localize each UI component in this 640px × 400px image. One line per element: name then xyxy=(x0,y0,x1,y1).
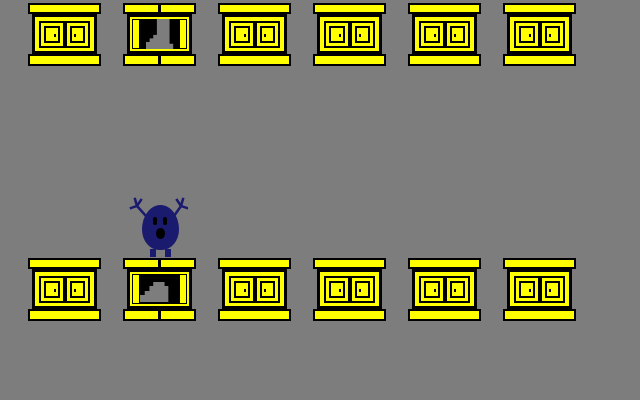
door-panel xyxy=(519,26,535,43)
door-handle-icon xyxy=(549,34,551,37)
cabinet-left-door[interactable] xyxy=(229,276,255,303)
door-panel xyxy=(355,26,371,43)
door-panel xyxy=(519,281,535,298)
door-panel xyxy=(424,26,440,43)
door-panel xyxy=(70,281,86,298)
cabinet-body xyxy=(507,269,572,309)
cabinet-bottom-shelf xyxy=(28,54,101,66)
cabinet-doors xyxy=(324,21,375,48)
cabinet-doors xyxy=(324,276,375,303)
cabinet-interior xyxy=(132,19,187,49)
cabinet-closed[interactable] xyxy=(503,3,576,66)
door-handle-icon xyxy=(74,34,76,37)
cabinet-left-door[interactable] xyxy=(324,21,350,48)
cabinet-closed[interactable] xyxy=(313,258,386,321)
door-panel xyxy=(329,281,345,298)
cabinet-doors xyxy=(229,276,280,303)
cabinet-bottom-shelf xyxy=(408,309,481,321)
cabinet-top-shelf xyxy=(408,258,481,269)
cabinet-closed[interactable] xyxy=(313,3,386,66)
cabinet-top-shelf xyxy=(313,258,386,269)
cabinet-doors xyxy=(514,276,565,303)
door-handle-icon xyxy=(359,289,361,292)
door-handle-icon xyxy=(74,289,76,292)
cabinet-body xyxy=(317,269,382,309)
cabinet-open[interactable] xyxy=(123,258,196,321)
cabinet-closed[interactable] xyxy=(28,3,101,66)
door-handle-icon xyxy=(54,289,56,292)
cabinet-bottom-shelf xyxy=(218,54,291,66)
cabinet-closed[interactable] xyxy=(503,258,576,321)
character-left-arm xyxy=(131,199,146,216)
cabinet-doors xyxy=(419,21,470,48)
door-handle-icon xyxy=(54,34,56,37)
door-handle-icon xyxy=(244,34,246,37)
cabinet-bottom-shelf xyxy=(313,309,386,321)
cabinet-right-door[interactable] xyxy=(65,276,91,303)
door-handle-icon xyxy=(434,289,436,292)
cabinet-doors xyxy=(39,276,90,303)
cabinet-top-shelf xyxy=(28,258,101,269)
cabinet-doors xyxy=(229,21,280,48)
cabinet-bottom-shelf xyxy=(503,54,576,66)
door-handle-icon xyxy=(359,34,361,37)
game-scene xyxy=(0,0,640,400)
cabinet-doors xyxy=(419,276,470,303)
character-mouth xyxy=(156,228,165,239)
cabinet-body xyxy=(222,14,287,54)
door-panel xyxy=(44,281,60,298)
door-panel xyxy=(545,281,561,298)
character-left-foot xyxy=(150,249,156,257)
cabinet-open[interactable] xyxy=(123,3,196,66)
cabinet-body xyxy=(507,14,572,54)
door-panel xyxy=(329,26,345,43)
cabinet-bottom-shelf xyxy=(408,54,481,66)
character-left-eye xyxy=(153,217,157,225)
door-handle-icon xyxy=(264,34,266,37)
door-handle-icon xyxy=(264,289,266,292)
cabinet-body xyxy=(317,14,382,54)
cabinet-doors xyxy=(514,21,565,48)
door-panel xyxy=(44,26,60,43)
cabinet-body xyxy=(32,269,97,309)
door-handle-icon xyxy=(339,289,341,292)
door-panel xyxy=(450,281,466,298)
cabinet-right-door[interactable] xyxy=(255,21,281,48)
cabinet-top-shelf xyxy=(408,3,481,14)
door-handle-icon xyxy=(454,289,456,292)
door-handle-icon xyxy=(244,289,246,292)
door-panel xyxy=(545,26,561,43)
cabinet-left-door[interactable] xyxy=(39,21,65,48)
open-door-edge-right xyxy=(180,20,186,48)
cabinet-right-door[interactable] xyxy=(350,21,376,48)
door-handle-icon xyxy=(529,289,531,292)
cabinet-doors xyxy=(39,21,90,48)
door-handle-icon xyxy=(339,34,341,37)
cabinet-bottom-shelf xyxy=(313,54,386,66)
character-right-foot xyxy=(165,249,171,257)
door-panel xyxy=(450,26,466,43)
cabinet-closed[interactable] xyxy=(218,3,291,66)
cabinet-left-door[interactable] xyxy=(324,276,350,303)
cabinet-bottom-shelf xyxy=(123,54,196,66)
cabinet-top-shelf xyxy=(123,258,196,269)
cabinet-body xyxy=(127,269,192,309)
cabinet-left-door[interactable] xyxy=(419,21,445,48)
door-panel xyxy=(260,281,276,298)
cabinet-top-shelf xyxy=(313,3,386,14)
door-handle-icon xyxy=(549,289,551,292)
cabinet-left-door[interactable] xyxy=(39,276,65,303)
door-panel xyxy=(355,281,371,298)
boot-icon xyxy=(146,19,175,49)
door-handle-icon xyxy=(434,34,436,37)
cabinet-right-door[interactable] xyxy=(445,21,471,48)
cabinet-body xyxy=(32,14,97,54)
door-panel xyxy=(70,26,86,43)
cabinet-top-shelf xyxy=(503,3,576,14)
cabinet-top-shelf xyxy=(123,3,196,14)
cabinet-body xyxy=(127,14,192,54)
cabinet-top-shelf xyxy=(218,3,291,14)
cabinet-closed[interactable] xyxy=(218,258,291,321)
cabinet-right-door[interactable] xyxy=(255,276,281,303)
door-panel xyxy=(234,281,250,298)
cabinet-left-door[interactable] xyxy=(419,276,445,303)
character-right-eye xyxy=(163,217,167,225)
open-door-edge-left xyxy=(133,275,139,303)
shoe-icon xyxy=(140,280,174,302)
door-handle-icon xyxy=(529,34,531,37)
player-character[interactable] xyxy=(128,196,188,258)
cabinet-bottom-shelf xyxy=(28,309,101,321)
open-door-edge-left xyxy=(133,20,139,48)
cabinet-right-door[interactable] xyxy=(350,276,376,303)
cabinet-left-door[interactable] xyxy=(514,276,540,303)
cabinet-left-door[interactable] xyxy=(514,21,540,48)
character-right-arm xyxy=(174,199,187,216)
cabinet-right-door[interactable] xyxy=(65,21,91,48)
cabinet-body xyxy=(412,14,477,54)
cabinet-bottom-shelf xyxy=(123,309,196,321)
cabinet-left-door[interactable] xyxy=(229,21,255,48)
cabinet-top-shelf xyxy=(503,258,576,269)
cabinet-body xyxy=(412,269,477,309)
cabinet-body xyxy=(222,269,287,309)
cabinet-top-shelf xyxy=(218,258,291,269)
cabinet-interior xyxy=(132,274,187,304)
door-panel xyxy=(424,281,440,298)
cabinet-bottom-shelf xyxy=(218,309,291,321)
door-panel xyxy=(234,26,250,43)
cabinet-right-door[interactable] xyxy=(540,276,566,303)
cabinet-right-door[interactable] xyxy=(445,276,471,303)
door-panel xyxy=(260,26,276,43)
cabinet-closed[interactable] xyxy=(28,258,101,321)
cabinet-bottom-shelf xyxy=(503,309,576,321)
cabinet-right-door[interactable] xyxy=(540,21,566,48)
open-door-edge-right xyxy=(180,275,186,303)
cabinet-top-shelf xyxy=(28,3,101,14)
cabinet-closed[interactable] xyxy=(408,3,481,66)
door-handle-icon xyxy=(454,34,456,37)
cabinet-closed[interactable] xyxy=(408,258,481,321)
